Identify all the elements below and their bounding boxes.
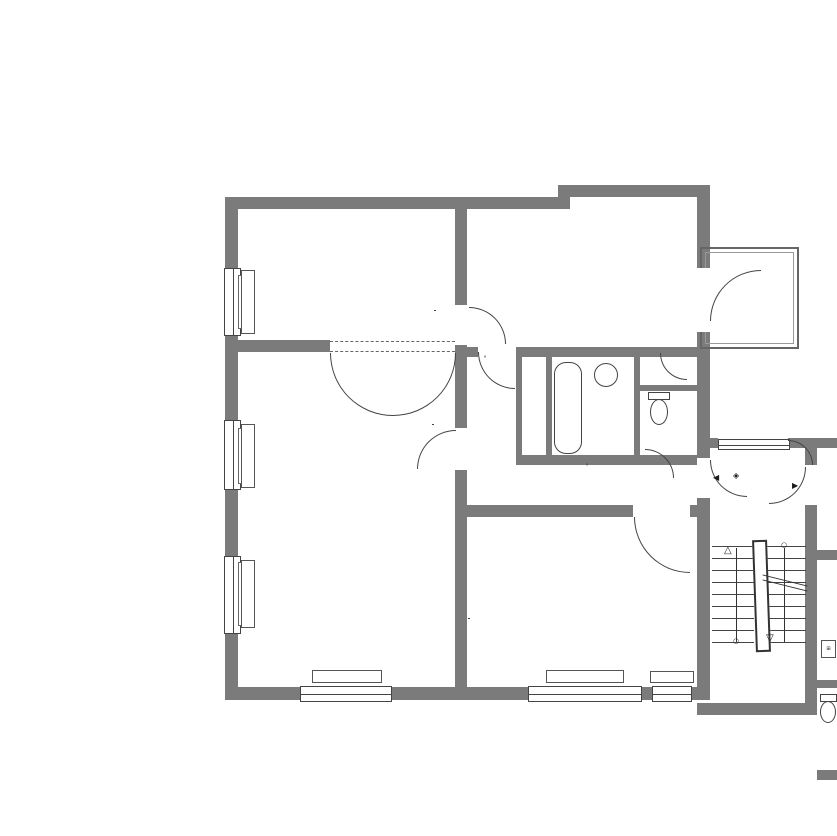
wall-segment xyxy=(634,357,640,457)
stairwell-window xyxy=(718,439,790,450)
window xyxy=(300,686,392,702)
dim-chain-right-1 xyxy=(790,245,804,435)
dim-chain-right-2 xyxy=(813,240,827,438)
we2-door-gap xyxy=(697,458,710,498)
dim-chain-balkon-width xyxy=(700,208,788,222)
wall-segment xyxy=(238,340,330,352)
small-fixture: ⊞ xyxy=(821,640,836,658)
dim-chain-right-edge xyxy=(826,185,837,440)
wall-segment xyxy=(558,185,710,197)
door-size-label xyxy=(485,356,486,358)
door-arc xyxy=(393,353,456,416)
stair-start-circle-icon: ○ xyxy=(781,542,787,549)
door-size-label xyxy=(587,464,588,466)
wall-segment xyxy=(558,185,570,209)
toilet-bowl xyxy=(820,701,836,723)
door-size-label xyxy=(434,310,436,311)
dim-chain-left-2 xyxy=(100,190,114,710)
dim-chain-tr-main xyxy=(699,82,837,102)
wall-segment xyxy=(697,498,710,700)
dim-chain-left-1 xyxy=(78,190,92,710)
dim-group-top-right xyxy=(696,53,837,148)
lintel-dashed xyxy=(330,341,455,352)
wall-segment xyxy=(516,357,522,457)
dim-group-bottom-right xyxy=(687,777,837,836)
wall-segment xyxy=(467,347,478,357)
door-size-label xyxy=(468,618,470,619)
toilet-bowl xyxy=(650,399,668,425)
door-arc xyxy=(769,467,806,504)
wall-segment xyxy=(467,505,633,517)
window xyxy=(652,686,692,702)
dim-chain-left-3 xyxy=(123,190,137,710)
wall-segment xyxy=(455,470,467,687)
bathtub xyxy=(554,362,582,454)
we3-arrow-icon: ▶ xyxy=(792,482,798,490)
wall-segment xyxy=(817,680,837,688)
level-marker-icon: ◈ xyxy=(733,472,739,480)
wall-segment xyxy=(455,345,467,428)
dim-chain-br-1 xyxy=(693,783,837,802)
floorplan-canvas: ⊞ △ ▽ ○ ○ xyxy=(0,0,837,836)
sink xyxy=(594,363,618,387)
door-arc xyxy=(478,352,515,389)
window-sill-label xyxy=(546,670,624,683)
wall-segment xyxy=(697,332,710,458)
window-sill-label xyxy=(241,270,255,334)
door-arc xyxy=(660,353,687,380)
window-sill-label xyxy=(312,670,382,683)
wall-segment xyxy=(546,357,552,457)
door-arc xyxy=(634,517,690,573)
stair-flight-left xyxy=(712,546,754,648)
dim-chain-kochen-width xyxy=(700,184,788,198)
window-sill-label xyxy=(650,671,694,683)
dim-chain-left-6 xyxy=(192,190,206,710)
dim-chain-bottom-main xyxy=(225,752,710,766)
dim-chain-left-4 xyxy=(146,190,160,710)
wall-segment xyxy=(690,505,697,517)
wall-segment xyxy=(455,209,467,305)
dim-chain-bottom-total xyxy=(225,774,710,788)
door-arc xyxy=(417,430,456,469)
window-sill-label xyxy=(241,424,255,488)
balcony-door-gap xyxy=(697,268,710,332)
dim-chain-top-main xyxy=(225,93,710,107)
wall-segment xyxy=(817,550,837,560)
dim-chain-top-total xyxy=(225,68,710,82)
dim-chain-bottom-detail xyxy=(238,728,705,742)
door-arc xyxy=(469,307,506,344)
dim-chain-top-detail xyxy=(225,116,710,130)
wall-segment xyxy=(640,385,697,391)
dim-chain-tr-detail xyxy=(700,108,837,128)
dim-chain-br-2 xyxy=(688,808,837,828)
door-arc xyxy=(330,353,393,416)
window xyxy=(528,686,642,702)
we2-arrow-icon: ◀ xyxy=(713,474,719,482)
stair-walk-line xyxy=(784,548,785,642)
stair-start-circle-icon: ○ xyxy=(733,638,739,645)
door-arc xyxy=(645,449,674,478)
wall-segment xyxy=(697,703,817,715)
door-size-label xyxy=(432,424,434,425)
stair-down-arrow-icon: ▽ xyxy=(766,634,774,644)
window-sill-label xyxy=(241,560,255,628)
stair-walk-line xyxy=(736,548,737,642)
stair-up-arrow-icon: △ xyxy=(724,546,732,556)
we3-door-gap xyxy=(805,465,817,505)
dim-chain-tr-total xyxy=(709,57,837,78)
wall-segment xyxy=(225,197,558,209)
dim-chain-left-5 xyxy=(169,190,183,710)
wall-segment xyxy=(710,438,718,448)
